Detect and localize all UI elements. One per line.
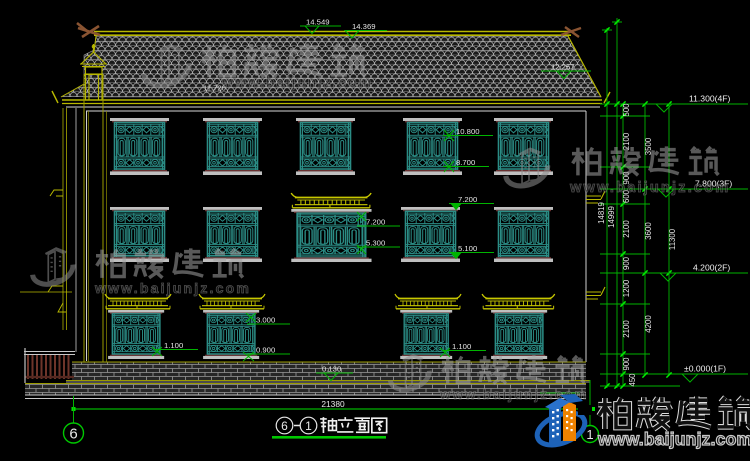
svg-text:900: 900 bbox=[622, 256, 631, 270]
svg-text:5.300: 5.300 bbox=[366, 239, 385, 248]
svg-text:1200: 1200 bbox=[622, 279, 631, 297]
svg-text:1.100: 1.100 bbox=[164, 341, 183, 350]
svg-text:14.369: 14.369 bbox=[352, 22, 376, 31]
svg-text:6: 6 bbox=[281, 419, 288, 433]
svg-text:450: 450 bbox=[628, 373, 637, 387]
svg-text:14999: 14999 bbox=[607, 206, 616, 228]
svg-text:6: 6 bbox=[69, 426, 77, 443]
svg-text:0.130: 0.130 bbox=[322, 365, 341, 374]
svg-text:500: 500 bbox=[622, 103, 631, 117]
svg-text:11.300(4F): 11.300(4F) bbox=[689, 94, 731, 104]
svg-text:7.200: 7.200 bbox=[366, 218, 385, 227]
svg-text:900: 900 bbox=[622, 357, 631, 371]
svg-text:4.200(2F): 4.200(2F) bbox=[693, 263, 730, 273]
svg-text:4200: 4200 bbox=[644, 315, 653, 333]
svg-text:8.700: 8.700 bbox=[456, 158, 475, 167]
svg-text:2100: 2100 bbox=[622, 220, 631, 238]
svg-text:10.800: 10.800 bbox=[456, 127, 480, 136]
svg-text:±0.000(1F): ±0.000(1F) bbox=[684, 364, 726, 374]
svg-text:www.baijunjz.com: www.baijunjz.com bbox=[569, 180, 730, 196]
svg-text:11300: 11300 bbox=[668, 228, 677, 250]
svg-text:1.100: 1.100 bbox=[452, 342, 471, 351]
svg-text:1: 1 bbox=[305, 419, 312, 433]
svg-text:0.900: 0.900 bbox=[256, 346, 275, 355]
svg-text:3.000: 3.000 bbox=[256, 316, 275, 325]
svg-text:www.baijunjz.com: www.baijunjz.com bbox=[94, 280, 251, 296]
svg-text:5.100: 5.100 bbox=[458, 244, 477, 253]
svg-text:21380: 21380 bbox=[321, 399, 345, 409]
svg-text:14.549: 14.549 bbox=[306, 18, 330, 27]
svg-text:1: 1 bbox=[586, 427, 593, 442]
svg-text:14819: 14819 bbox=[597, 202, 606, 224]
svg-text:2100: 2100 bbox=[622, 320, 631, 338]
svg-text:www.baijunjz.com: www.baijunjz.com bbox=[221, 75, 373, 91]
svg-text:3600: 3600 bbox=[644, 222, 653, 240]
svg-text:7.200: 7.200 bbox=[458, 195, 477, 204]
svg-text:12.257: 12.257 bbox=[551, 63, 575, 72]
svg-text:www.baijunjz.com: www.baijunjz.com bbox=[597, 429, 750, 449]
